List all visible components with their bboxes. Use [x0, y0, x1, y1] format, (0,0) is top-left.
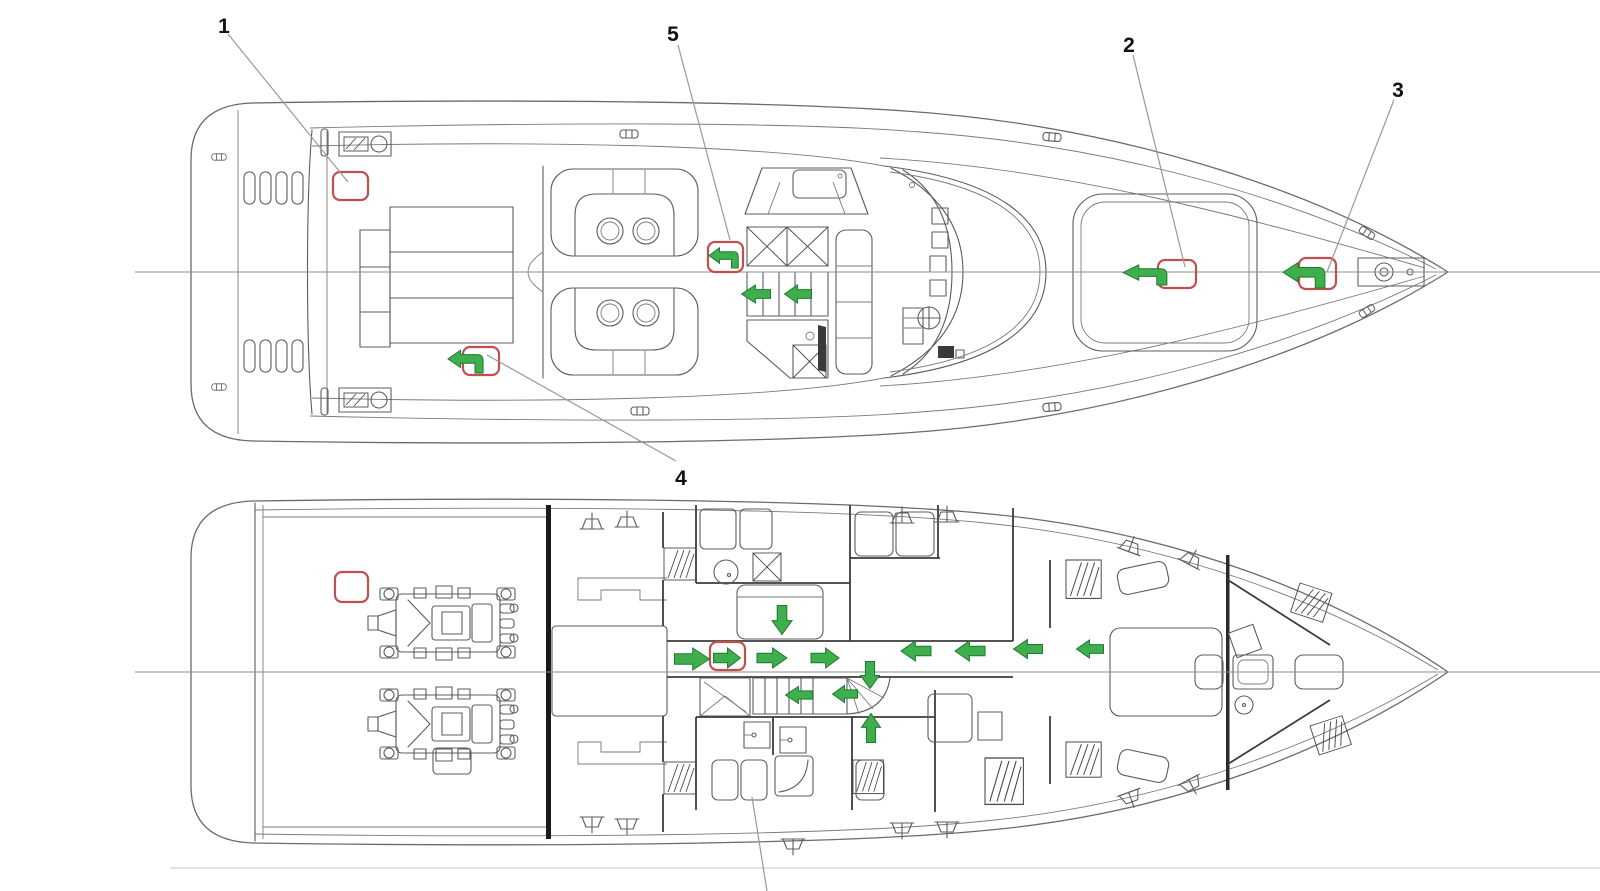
crew-cabins — [696, 690, 935, 812]
escape-plan-diagram: 15234 — [0, 0, 1600, 891]
turn-arrow-icon-turn-port-aft — [448, 350, 483, 373]
callout-5-leader — [678, 45, 730, 240]
callout-2-label: 2 — [1123, 34, 1135, 57]
route-arrow-icon-left-11 — [833, 686, 858, 703]
route-arrow-icon-right-1 — [714, 648, 741, 668]
starboard-engine — [368, 687, 518, 761]
route-arrow-icon-down-8 — [772, 606, 792, 635]
route-arrow-icon-right-0 — [675, 648, 710, 670]
lower-deck-plan — [191, 499, 1448, 855]
turn-arrow-icon-turn-foredeck — [1123, 265, 1167, 285]
route-arrow-icon-left-13 — [742, 285, 771, 303]
aft-sunpad-hatch — [360, 207, 513, 347]
callout-2-leader — [1133, 55, 1185, 267]
route-arrow-icon-right-3 — [811, 648, 839, 668]
galley-counters — [747, 227, 828, 266]
pantry-counter — [747, 320, 828, 378]
callout-1-label: 1 — [218, 15, 230, 38]
muster-box-engine-room — [335, 572, 368, 602]
mid-cabin-port — [850, 505, 1013, 641]
callout-1-leader — [228, 34, 348, 182]
turn-arrow-icon-turn-salon — [709, 248, 738, 268]
salon-bench — [836, 230, 872, 374]
route-arrow-icon-left-5 — [955, 641, 985, 661]
port-engine — [368, 586, 518, 660]
route-arrow-icon-left-6 — [1014, 640, 1043, 659]
callout-4-label: 4 — [675, 467, 687, 490]
steering-wheel-icon — [918, 307, 940, 329]
callout-5-label: 5 — [667, 23, 679, 46]
route-arrow-icon-left-7 — [1077, 640, 1104, 658]
turn-arrow-icon-turn-bow — [1283, 263, 1325, 288]
mid-cabin-starboard — [928, 694, 1023, 804]
route-arrow-icon-left-4 — [901, 641, 931, 661]
mast-structure — [745, 168, 868, 214]
callout-3-label: 3 — [1392, 79, 1404, 102]
day-head-shower — [700, 678, 750, 716]
route-arrow-icon-right-2 — [757, 648, 787, 668]
route-arrow-icon-down-9 — [861, 662, 880, 689]
cutoff-callout-leader — [752, 797, 767, 891]
route-arrow-icon-left-14 — [785, 285, 812, 303]
callout-3-leader — [1327, 100, 1394, 272]
muster-box-main-deck-aft — [333, 172, 368, 200]
